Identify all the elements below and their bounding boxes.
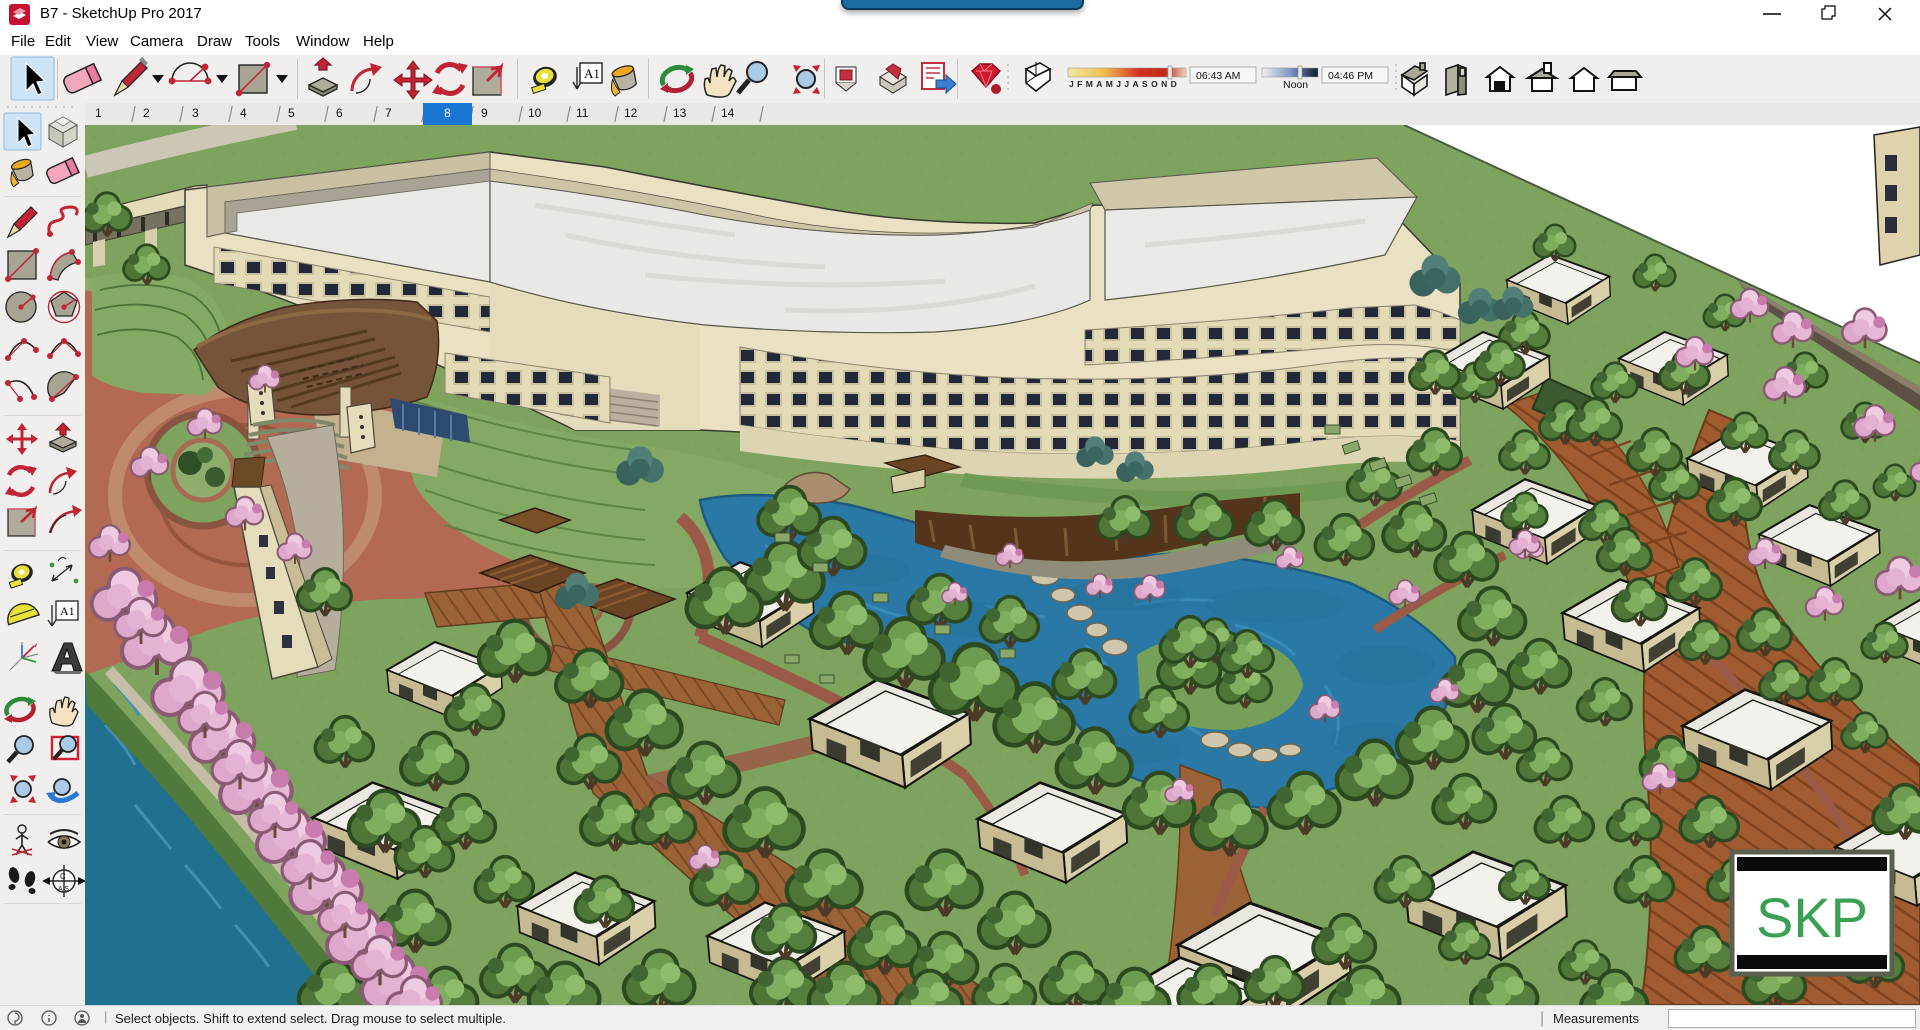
svg-text:SKP: SKP bbox=[1756, 886, 1868, 949]
svg-text:Noon: Noon bbox=[1283, 79, 1308, 91]
svg-text:06:43 AM: 06:43 AM bbox=[1196, 70, 1240, 82]
svg-text:A S: A S bbox=[58, 886, 69, 893]
svg-text:A1: A1 bbox=[584, 66, 600, 81]
svg-text:04:46 PM: 04:46 PM bbox=[1328, 70, 1373, 82]
svg-text:C: C bbox=[60, 872, 66, 881]
svg-text:A1: A1 bbox=[60, 604, 75, 618]
svg-text:JFMAMJJASOND: JFMAMJJASOND bbox=[1069, 79, 1180, 89]
